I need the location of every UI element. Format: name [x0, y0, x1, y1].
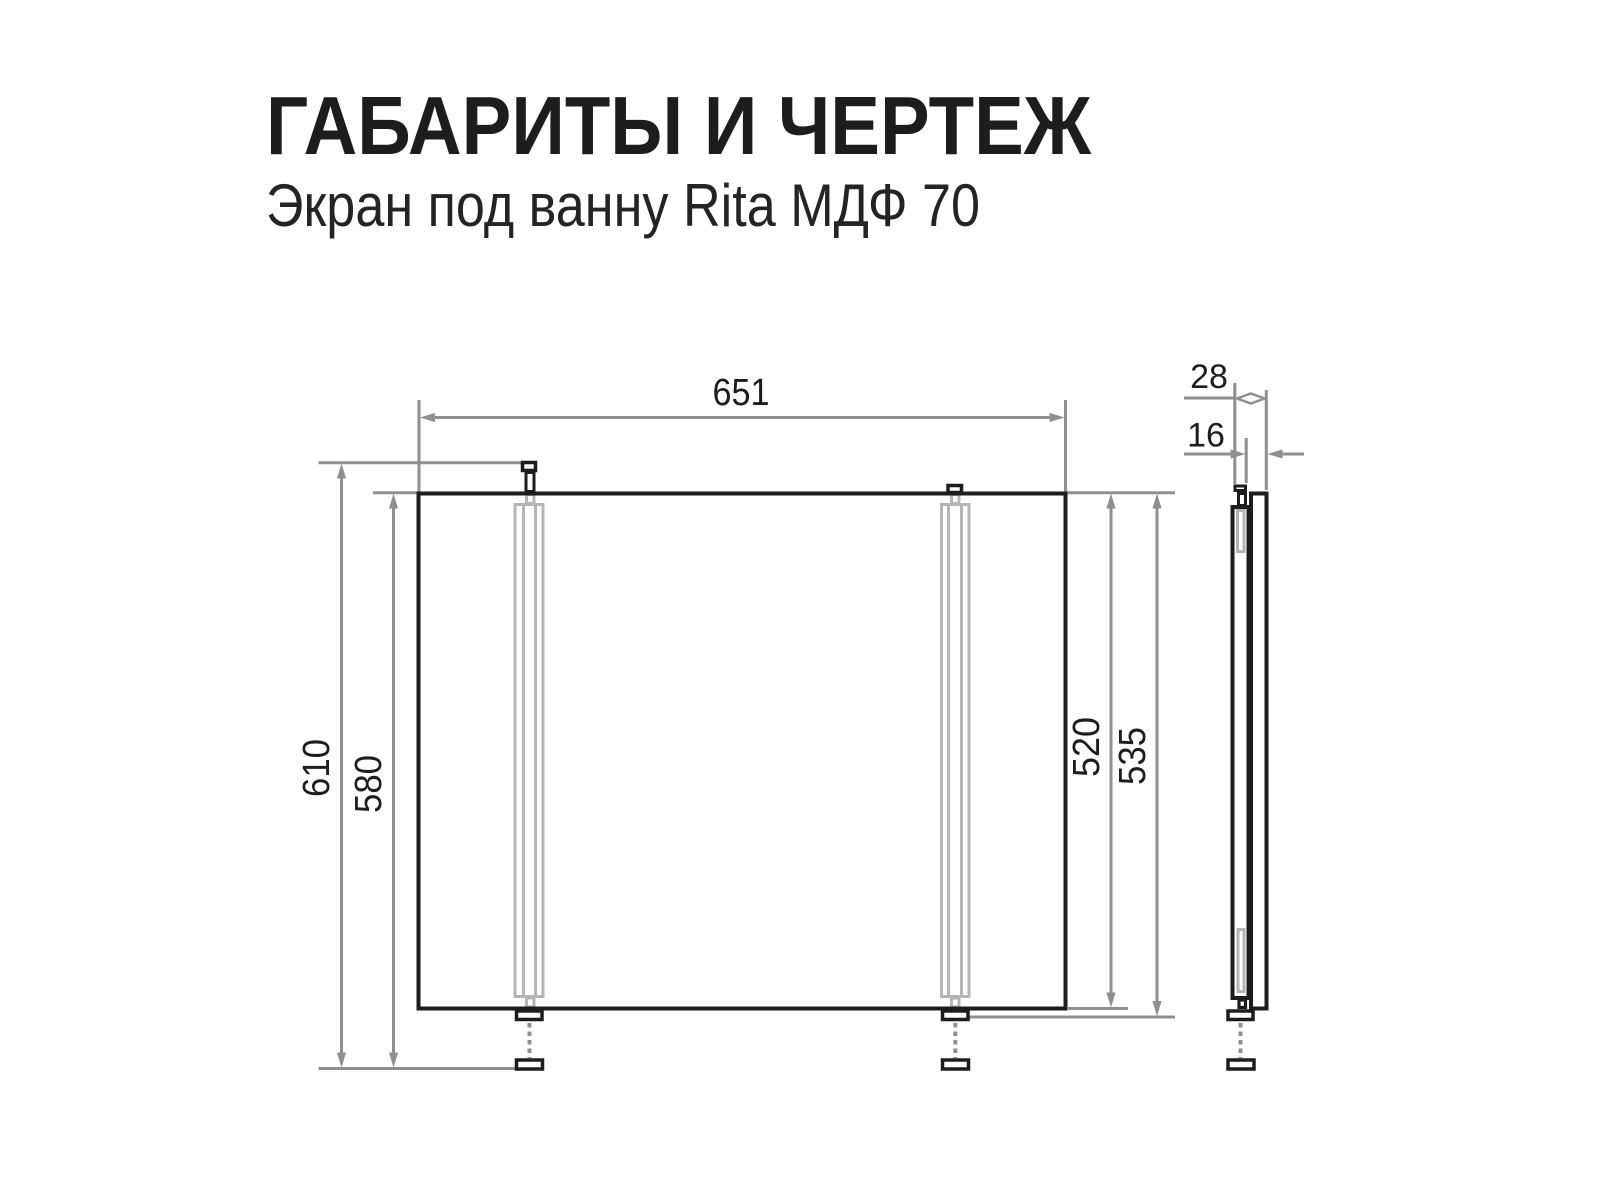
svg-text:28: 28 [1190, 358, 1228, 396]
svg-text:Экран под ванну Rita МДФ 70: Экран под ванну Rita МДФ 70 [266, 172, 980, 239]
svg-text:580: 580 [348, 755, 390, 813]
svg-text:520: 520 [1066, 717, 1108, 777]
svg-text:651: 651 [713, 372, 770, 414]
svg-text:ГАБАРИТЫ И ЧЕРТЕЖ: ГАБАРИТЫ И ЧЕРТЕЖ [266, 79, 1092, 172]
svg-text:610: 610 [296, 739, 338, 797]
svg-text:535: 535 [1112, 727, 1154, 785]
svg-text:16: 16 [1187, 417, 1225, 455]
